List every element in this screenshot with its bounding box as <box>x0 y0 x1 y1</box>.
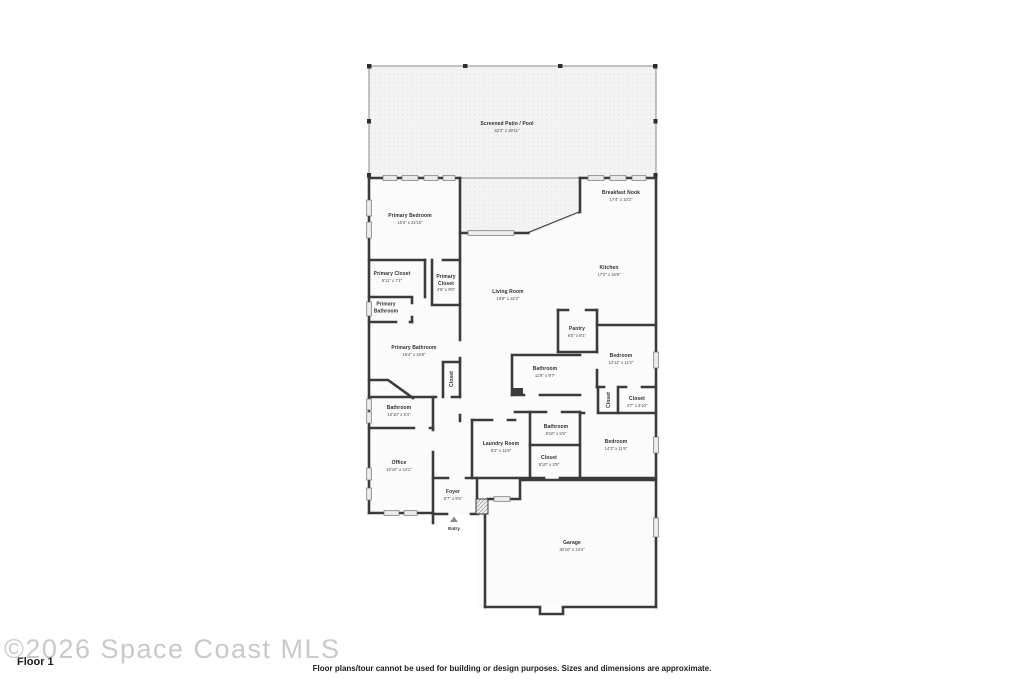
room-dims: 8'10" x 5'5" <box>544 431 568 436</box>
room-label-primary-closet-right: Primary Closet 4'5" x 9'6" <box>430 274 462 292</box>
room-label-primary-bathroom: Primary Bathroom 16'4" x 16'6" <box>391 345 436 357</box>
room-label-bathroom-middle: Bathroom 11'8" x 9'7" <box>533 366 557 378</box>
room-name: Bedroom <box>609 353 634 360</box>
room-dims: 52'2" x 29'11" <box>480 128 533 133</box>
room-dims: 4'5" x 9'6" <box>430 287 462 292</box>
floorplan-drawing <box>0 0 1024 683</box>
entry-arrow-icon <box>450 517 458 523</box>
room-label-primary-bedroom: Primary Bedroom 16'4" x 22'10" <box>388 213 431 225</box>
room-dims: 4'7" x 3'10" <box>627 403 648 408</box>
room-label-primary-bathroom-toilet: Primary Bathroom <box>370 302 402 315</box>
room-label-kitchen: Kitchen 17'2" x 16'8" <box>598 265 621 277</box>
room-dims: 8'10" x 3'9" <box>539 462 560 467</box>
room-name: Primary Bathroom <box>370 302 402 315</box>
room-dims: 18'9" x 22'2" <box>492 296 523 301</box>
entry-label: Entry <box>448 526 460 531</box>
room-label-primary-closet-left: Primary Closet 6'11" x 7'1" <box>374 271 411 283</box>
room-name: Bathroom <box>544 424 568 431</box>
room-dims: 6'5" x 8'1" <box>568 333 586 338</box>
room-label-pantry: Pantry 6'5" x 8'1" <box>568 326 586 338</box>
room-dims: 10'10" x 5'4" <box>387 412 411 417</box>
bathroom-fixture <box>513 388 523 394</box>
room-dims: 16'4" x 22'10" <box>388 220 431 225</box>
room-name: Closet <box>539 455 560 462</box>
room-dims: 6'11" x 7'1" <box>374 278 411 283</box>
room-name: Screened Patio / Pool <box>480 121 533 128</box>
room-name: Primary Closet <box>430 274 462 287</box>
room-name: Primary Bedroom <box>388 213 431 220</box>
room-label-screened-patio: Screened Patio / Pool 52'2" x 29'11" <box>480 121 533 133</box>
room-name: Kitchen <box>598 265 621 272</box>
room-dims: 16'4" x 16'6" <box>391 352 436 357</box>
room-dims: 30'10" x 24'4" <box>559 547 584 552</box>
room-label-foyer: Foyer 8'7" x 9'5" <box>444 489 462 501</box>
room-dims: 8'7" x 9'5" <box>444 496 462 501</box>
room-label-laundry-room: Laundry Room 8'2" x 11'6" <box>483 441 519 453</box>
room-dims: 14'3" x 11'6" <box>605 446 628 451</box>
room-name: Closet <box>449 371 456 387</box>
room-label-closet-primary-vertical: Closet <box>449 371 456 387</box>
room-name: Bathroom <box>533 366 557 373</box>
floorplan-page: Screened Patio / Pool 52'2" x 29'11" Bre… <box>0 0 1024 683</box>
room-name: Living Room <box>492 289 523 296</box>
room-label-living-room: Living Room 18'9" x 22'2" <box>492 289 523 301</box>
room-label-closet-bedroom-right: Closet 4'7" x 3'10" <box>627 396 648 408</box>
room-label-bathroom-left: Bathroom 10'10" x 5'4" <box>387 405 411 417</box>
room-label-bedroom-middle: Bedroom 12'11" x 11'2" <box>609 353 634 365</box>
room-label-closet-center: Closet 8'10" x 3'9" <box>539 455 560 467</box>
room-name: Garage <box>559 540 584 547</box>
room-dims: 11'8" x 9'7" <box>533 373 557 378</box>
room-label-bedroom-right: Bedroom 14'3" x 11'6" <box>605 439 628 451</box>
room-label-closet-hall-vertical: Closet <box>606 392 613 408</box>
room-name: Closet <box>606 392 613 408</box>
room-label-garage: Garage 30'10" x 24'4" <box>559 540 584 552</box>
room-name: Foyer <box>444 489 462 496</box>
room-name: Bathroom <box>387 405 411 412</box>
room-dims: 17'4" x 10'2" <box>602 197 640 202</box>
room-label-bathroom-center-small: Bathroom 8'10" x 5'5" <box>544 424 568 436</box>
room-name: Breakfast Nook <box>602 190 640 197</box>
room-dims: 8'2" x 11'6" <box>483 448 519 453</box>
room-name: Laundry Room <box>483 441 519 448</box>
room-label-office: Office 10'10" x 14'1" <box>386 460 411 472</box>
chase-hatch <box>476 499 488 514</box>
mls-watermark: ©2026 Space Coast MLS <box>4 634 341 665</box>
room-dims: 12'11" x 11'2" <box>609 360 634 365</box>
room-name: Closet <box>627 396 648 403</box>
room-label-breakfast-nook: Breakfast Nook 17'4" x 10'2" <box>602 190 640 202</box>
room-name: Primary Bathroom <box>391 345 436 352</box>
room-name: Pantry <box>568 326 586 333</box>
disclaimer-text: Floor plans/tour cannot be used for buil… <box>0 664 1024 673</box>
room-name: Primary Closet <box>374 271 411 278</box>
room-dims: 17'2" x 16'8" <box>598 272 621 277</box>
room-name: Bedroom <box>605 439 628 446</box>
room-dims: 10'10" x 14'1" <box>386 467 411 472</box>
